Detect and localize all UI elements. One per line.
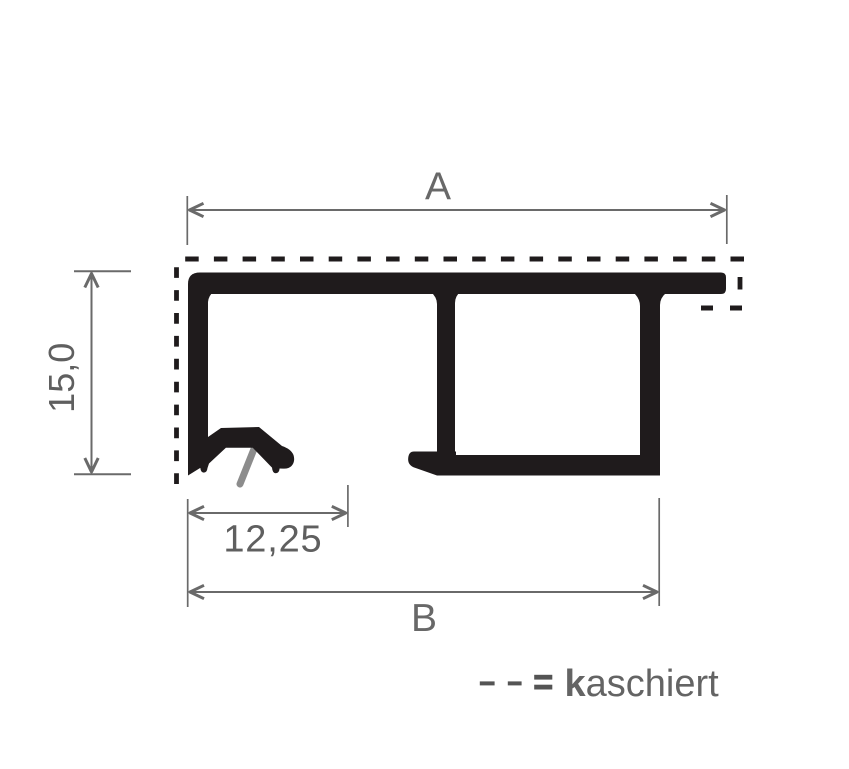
svg-text:12,25: 12,25 — [223, 519, 322, 561]
svg-text:B: B — [411, 597, 437, 640]
svg-text:kaschiert: kaschiert — [565, 663, 720, 705]
svg-text:A: A — [425, 166, 451, 209]
svg-text:15,0: 15,0 — [41, 343, 82, 413]
